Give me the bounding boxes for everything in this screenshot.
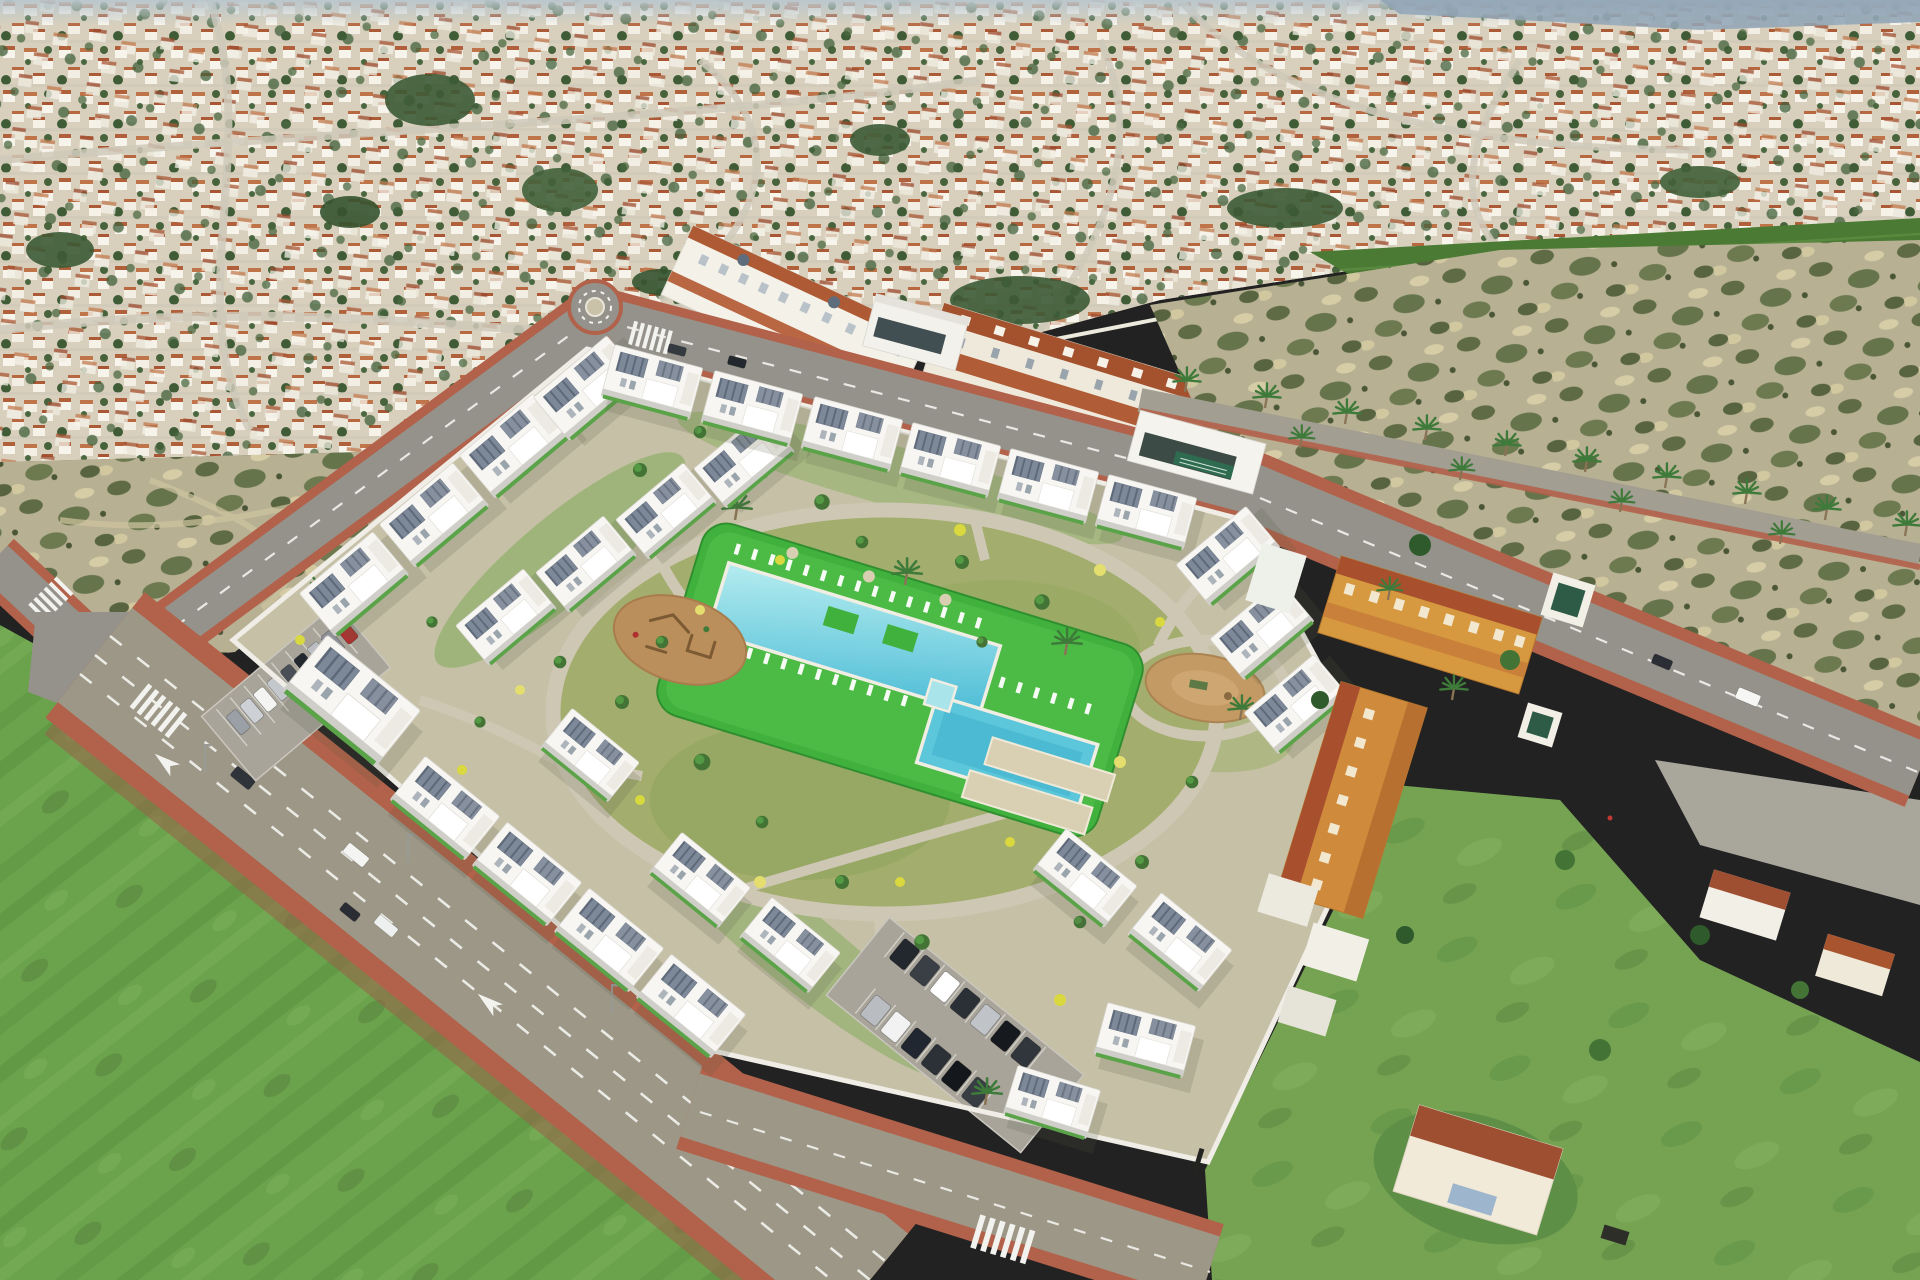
aerial-photo [0,0,1920,1280]
person-dot [1608,816,1613,821]
green-roof-house [1518,703,1563,748]
roundabout [569,281,621,333]
aerial-scene [0,0,1920,1280]
